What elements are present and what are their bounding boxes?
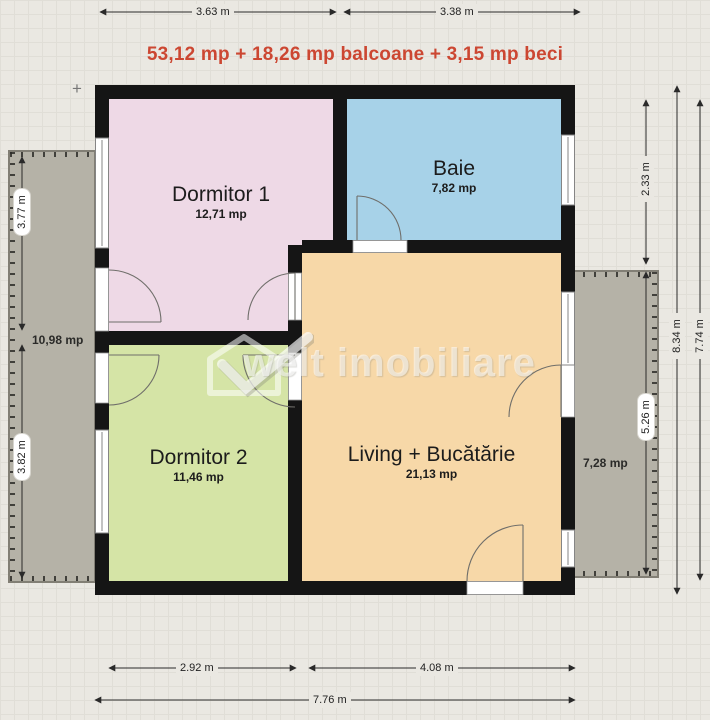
balcony-right-area: 7,28 mp <box>583 456 628 470</box>
room-label-living: Living + Bucătărie 21,13 mp <box>302 443 561 481</box>
room-name: Dormitor 1 <box>109 183 333 206</box>
dimension-label-bottom-left: 2.92 m <box>176 660 218 676</box>
dimension-label-left-lower: 3.82 m <box>14 434 30 480</box>
dimension-label-top-right: 3.38 m <box>436 4 478 20</box>
room-name: Living + Bucătărie <box>302 443 561 466</box>
dimension-label-right-total-outer: 8.34 m <box>669 313 685 359</box>
dimension-label-right-total-inner: 7.74 m <box>692 313 708 359</box>
room-living <box>302 253 561 581</box>
dimension-label-right-balcony: 5.26 m <box>638 394 654 440</box>
room-name: Baie <box>347 157 561 180</box>
dimension-label-right-upper: 2.33 m <box>638 156 654 202</box>
room-label-baie: Baie 7,82 mp <box>347 157 561 195</box>
balcony-left-area: 10,98 mp <box>32 333 83 347</box>
interior-wall-dormitor2-living <box>288 245 302 581</box>
room-area: 21,13 mp <box>302 467 561 481</box>
floor-plan: 53,12 mp + 18,26 mp balcoane + 3,15 mp b… <box>0 0 710 720</box>
dimension-label-left-upper: 3.77 m <box>14 189 30 235</box>
brand-watermark: welt imobiliare <box>243 341 536 386</box>
room-name: Dormitor 2 <box>109 446 288 469</box>
plan-title: 53,12 mp + 18,26 mp balcoane + 3,15 mp b… <box>0 44 710 66</box>
interior-wall-baie-living <box>302 240 561 253</box>
room-area: 7,82 mp <box>347 181 561 195</box>
plus-mark: + <box>72 79 82 99</box>
dimension-label-top-left: 3.63 m <box>192 4 234 20</box>
dimension-label-bottom-total: 7.76 m <box>309 692 351 708</box>
room-label-dormitor2: Dormitor 2 11,46 mp <box>109 446 288 484</box>
room-area: 11,46 mp <box>109 470 288 484</box>
room-area: 12,71 mp <box>109 207 333 221</box>
dimension-label-bottom-right: 4.08 m <box>416 660 458 676</box>
room-label-dormitor1: Dormitor 1 12,71 mp <box>109 183 333 221</box>
interior-wall-dormitor1-baie <box>333 99 347 253</box>
